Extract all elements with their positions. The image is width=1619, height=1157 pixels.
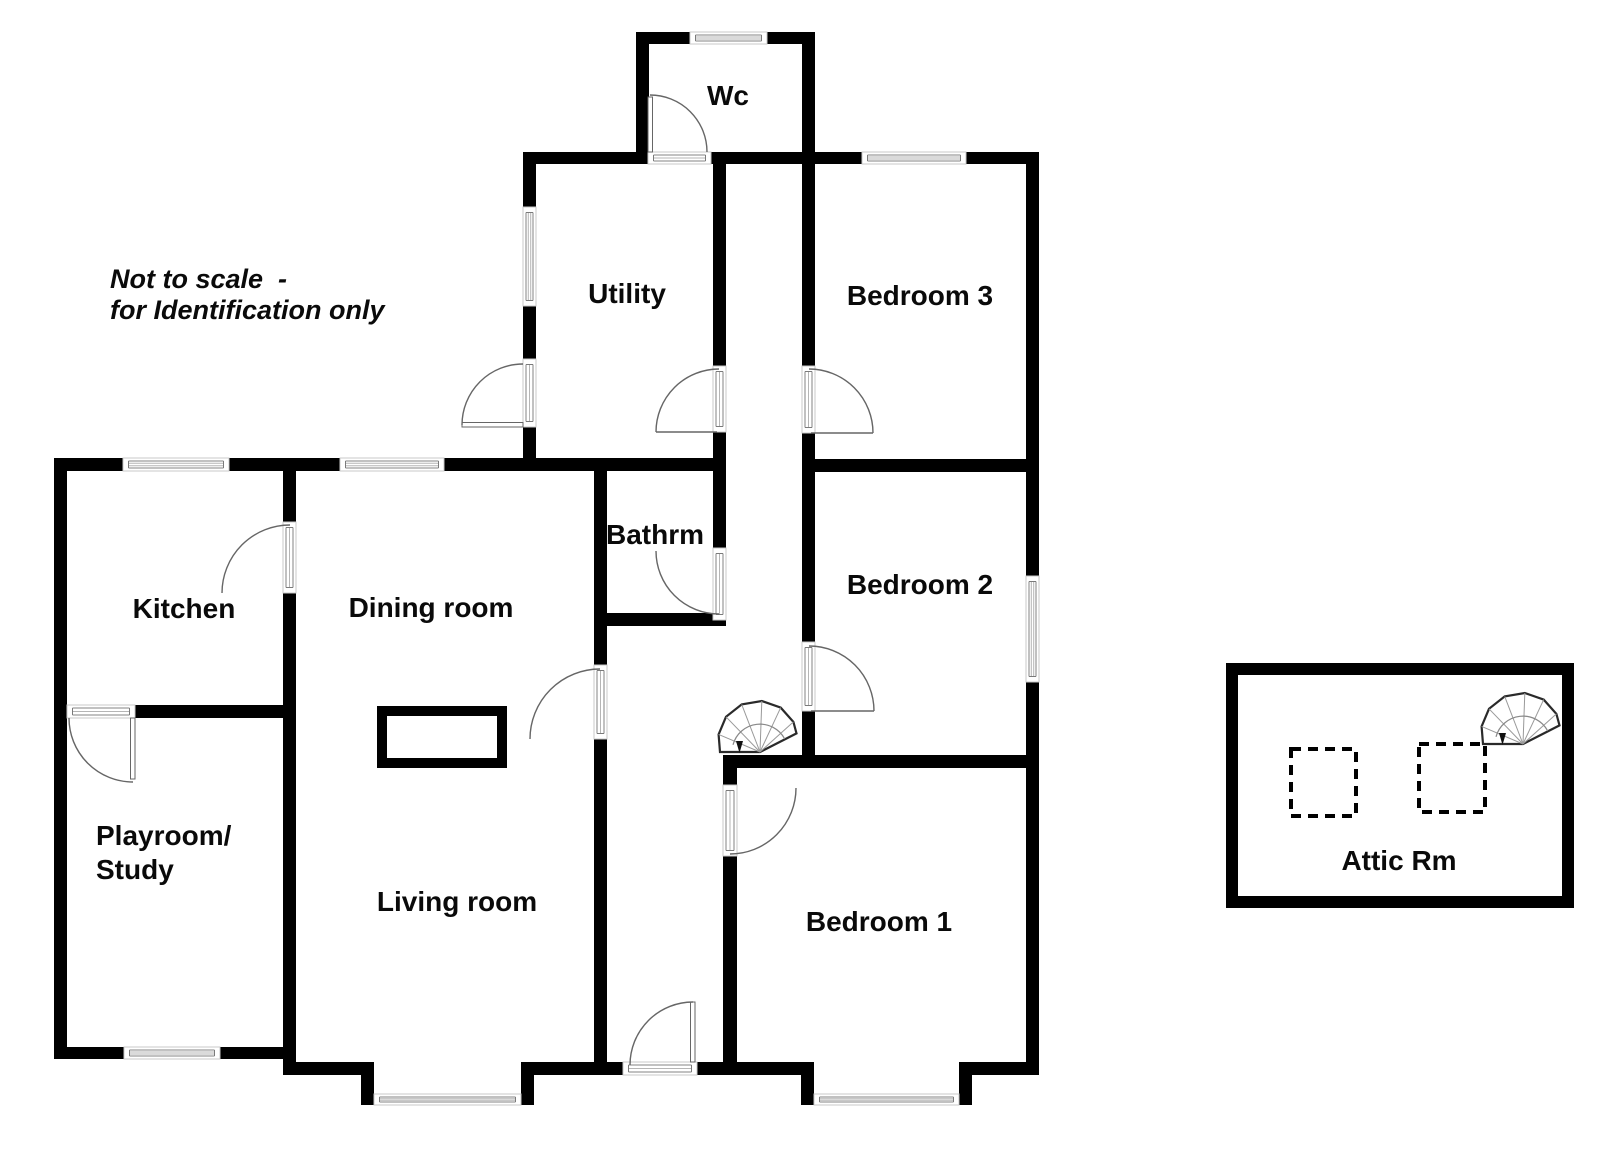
svg-text:Bedroom 1: Bedroom 1 (806, 906, 952, 937)
svg-text:Bedroom 2: Bedroom 2 (847, 569, 993, 600)
svg-text:Playroom/: Playroom/ (96, 820, 232, 851)
svg-text:Living room: Living room (377, 886, 537, 917)
svg-text:Wc: Wc (707, 80, 749, 111)
svg-text:Kitchen: Kitchen (133, 593, 236, 624)
svg-text:Study: Study (96, 854, 174, 885)
svg-text:Bathrm: Bathrm (606, 519, 704, 550)
svg-text:Utility: Utility (588, 278, 666, 309)
svg-text:Dining room: Dining room (349, 592, 514, 623)
svg-text:Bedroom 3: Bedroom 3 (847, 280, 993, 311)
svg-text:for Identification only: for Identification only (110, 295, 386, 325)
svg-text:Attic Rm: Attic Rm (1341, 845, 1456, 876)
svg-text:Not to scale -: Not to scale - (110, 264, 287, 294)
